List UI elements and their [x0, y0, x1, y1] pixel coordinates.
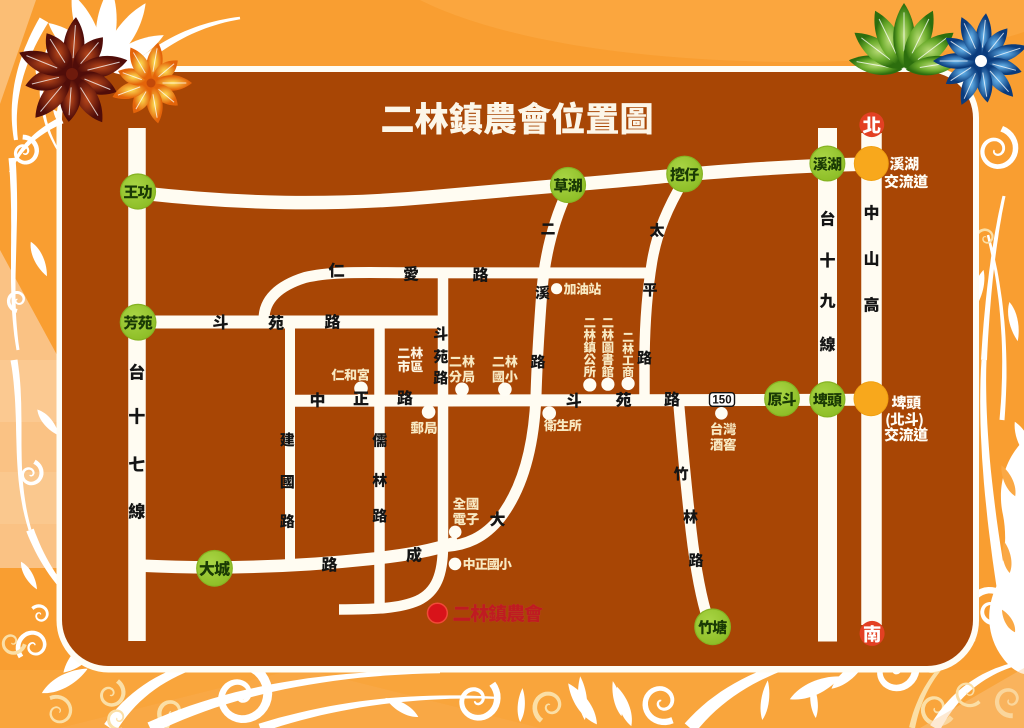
svg-text:150: 150 [712, 395, 731, 407]
